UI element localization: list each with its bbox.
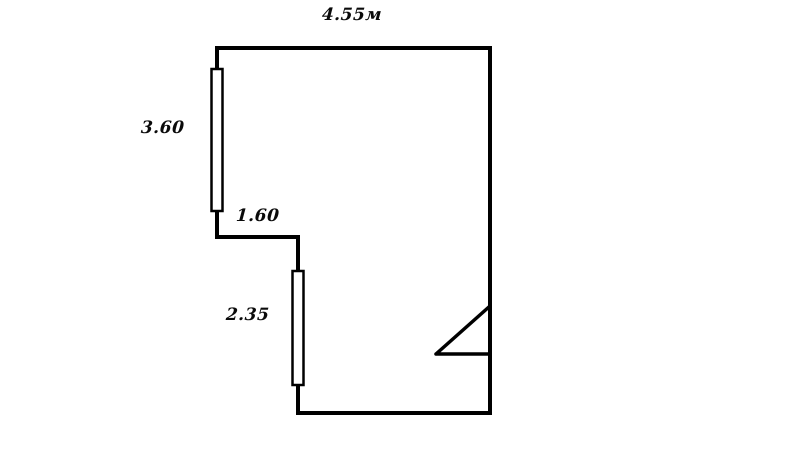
dimension-label-lower-left-height: 2.35 [225, 305, 270, 325]
lower-window-symbol [293, 271, 304, 385]
floor-plan-drawing [0, 0, 800, 450]
left-window-symbol [212, 69, 223, 211]
dimension-label-step-width: 1.60 [235, 206, 280, 226]
dimension-label-top-width: 4.55м [321, 5, 382, 25]
room-outline-walls [217, 48, 490, 413]
dimension-label-left-height: 3.60 [140, 118, 185, 138]
door-swing-symbol [436, 306, 490, 354]
floor-plan-canvas: 4.55м 3.60 1.60 2.35 [0, 0, 800, 450]
